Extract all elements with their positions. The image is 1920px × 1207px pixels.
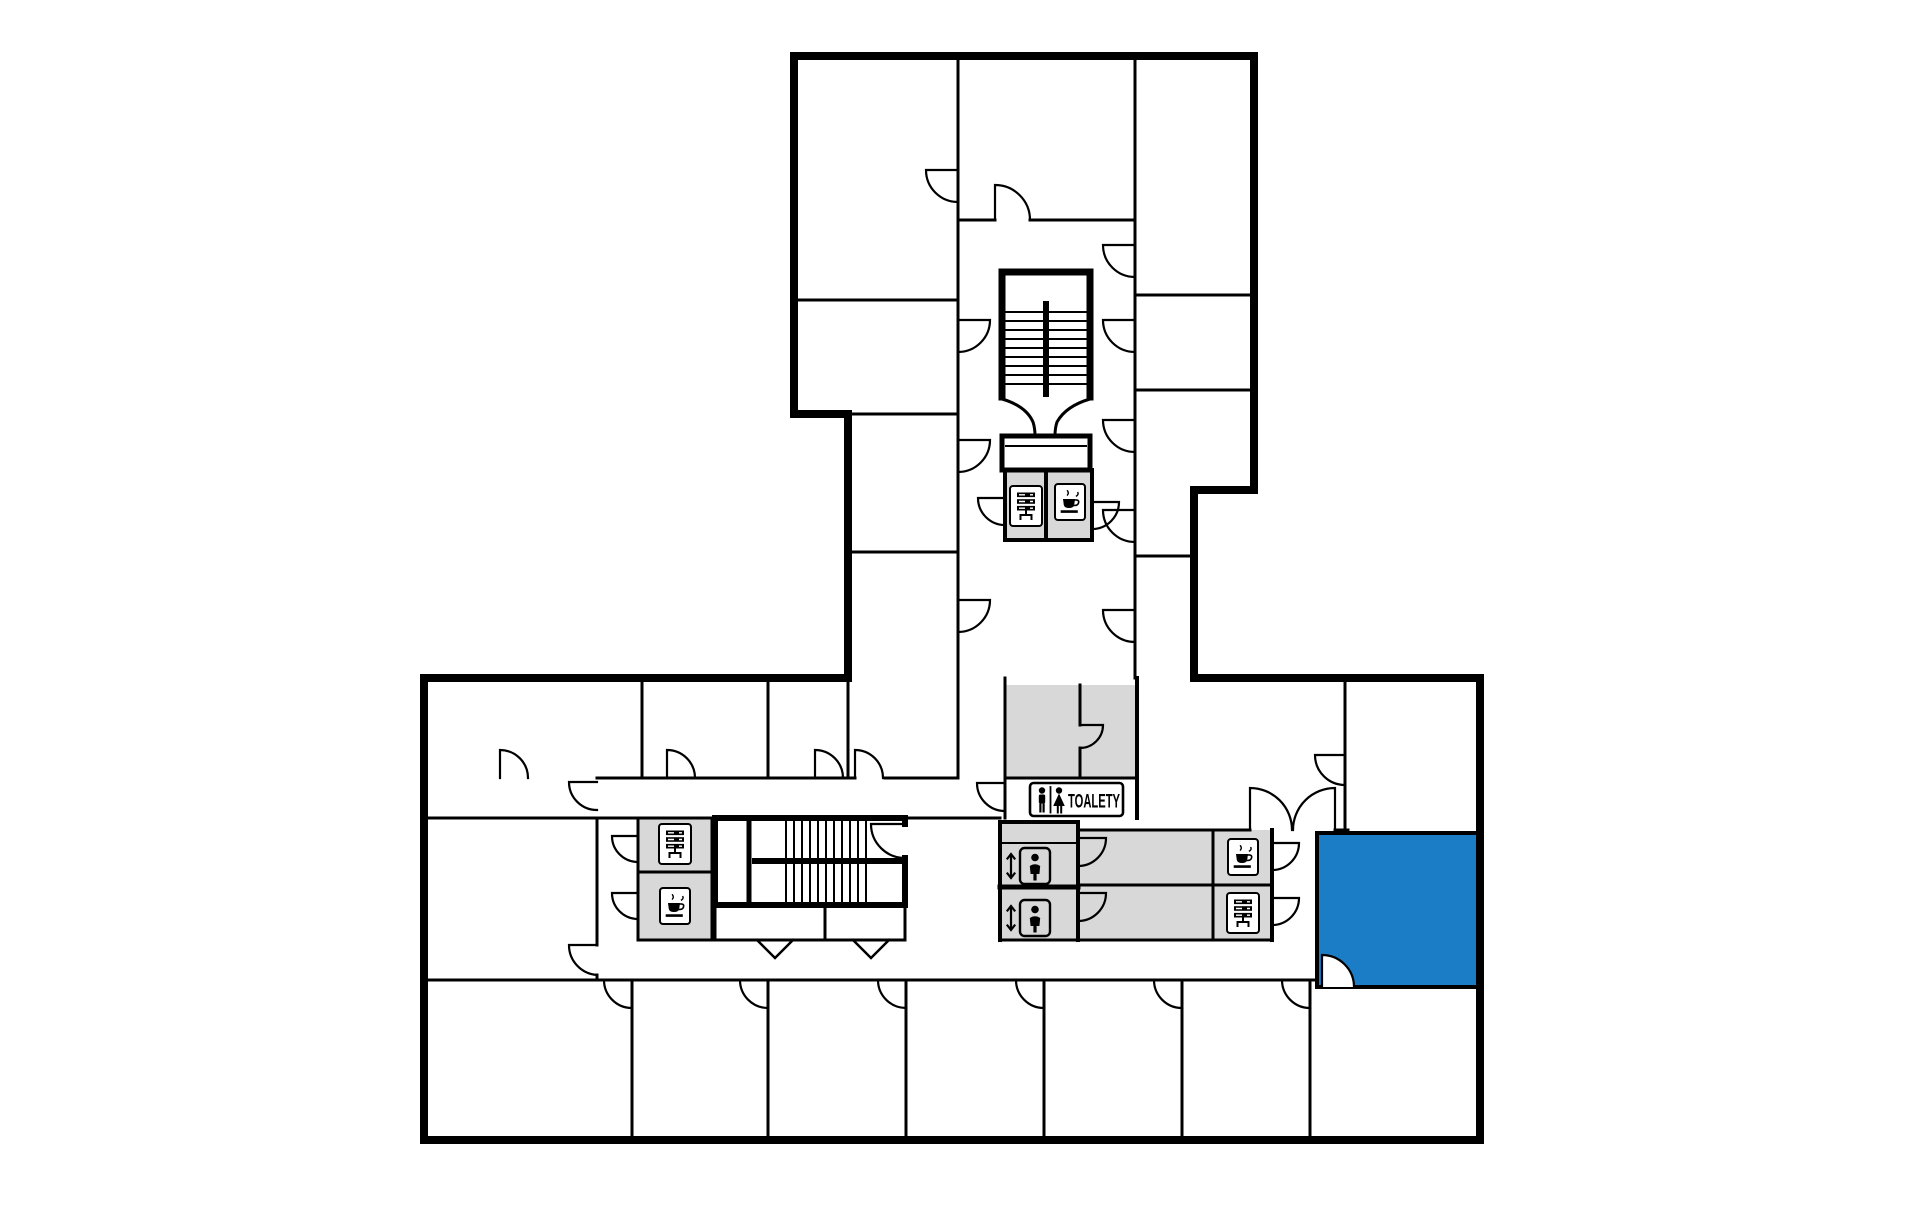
door-arc	[1103, 245, 1135, 277]
door-arc	[958, 440, 990, 472]
floor-plan: TOALETY	[0, 0, 1920, 1207]
door-arc	[1272, 843, 1299, 870]
wall	[715, 905, 905, 940]
room	[852, 418, 954, 548]
door-arc	[1103, 510, 1135, 542]
room	[428, 682, 638, 774]
room	[798, 60, 954, 296]
door-arc	[855, 750, 883, 778]
stair-exit-funnel	[1002, 399, 1090, 436]
door-arc	[569, 782, 597, 810]
door-arc	[978, 498, 1005, 525]
room-row	[428, 984, 1476, 1136]
printer-icon	[1227, 893, 1259, 933]
coffee-icon	[1055, 484, 1085, 520]
door-arc	[1103, 320, 1135, 352]
room	[1349, 682, 1476, 826]
service-room-toilets	[1005, 685, 1137, 778]
room	[852, 556, 954, 674]
room	[1139, 60, 1250, 291]
room	[1139, 299, 1250, 386]
toalety-sign: TOALETY	[1030, 783, 1123, 816]
room	[962, 60, 1131, 216]
door-arc	[1103, 420, 1135, 452]
elevator-shaft-top-wing	[1002, 436, 1090, 470]
door-arc	[612, 836, 638, 862]
room	[646, 682, 764, 774]
door-arc	[1092, 502, 1119, 529]
floor-plan-page: TOALETY	[0, 0, 1920, 1207]
door-arc	[612, 893, 638, 919]
corridor	[601, 944, 1313, 976]
room	[428, 822, 593, 976]
printer-icon	[659, 824, 691, 864]
toalety-label: TOALETY	[1068, 792, 1120, 813]
corridor	[601, 782, 996, 814]
door-arc	[1103, 610, 1135, 642]
room	[798, 304, 954, 410]
hall	[1141, 682, 1341, 826]
coffee-icon	[660, 888, 690, 924]
room	[772, 682, 844, 774]
printer-icon	[1010, 486, 1042, 526]
coffee-icon	[1228, 839, 1258, 875]
door-arc	[958, 320, 990, 352]
room	[1139, 394, 1250, 486]
door-arc	[871, 824, 905, 858]
door-arc	[1272, 898, 1299, 925]
door-arc	[958, 600, 990, 632]
stairwell-top	[1002, 272, 1090, 470]
